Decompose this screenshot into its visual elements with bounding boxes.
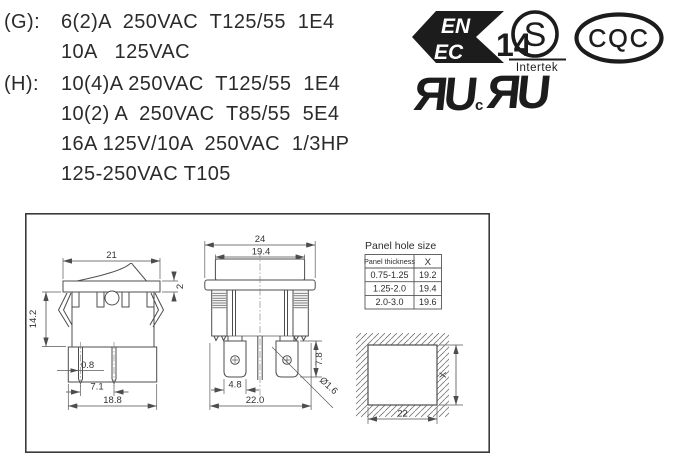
cutout-dim-height: X: [438, 371, 449, 378]
rating-g-line-2: 10A 125VAC: [61, 41, 190, 63]
cul-recognized-mark-icon: RU: [485, 68, 554, 115]
cutout-dim-width: 22: [397, 409, 408, 420]
cqc-text: CQC: [588, 25, 650, 53]
side-dim-term-thk: 0.8: [81, 360, 94, 371]
rating-h-line-3: 16A 125V/10A 250VAC 1/3HP: [61, 133, 349, 155]
table-row: 1.25-2.0 19.4: [373, 284, 437, 294]
rating-g-label: (G):: [4, 11, 40, 33]
side-dim-height: 14.2: [28, 310, 39, 329]
panel-cutout: 22 X: [356, 333, 463, 424]
snap-clip-left: [59, 293, 73, 327]
panel-hole-table: Panel hole size Panel thickness X 0.75-1…: [364, 240, 442, 309]
table-title: Panel hole size: [365, 240, 436, 252]
side-dim-bezel: 2: [175, 284, 186, 289]
front-dim-rocker-width: 19.4: [252, 247, 271, 258]
front-dim-bezel-width: 24: [255, 234, 266, 245]
datasheet-page: (G): 6(2)A 250VAC T125/55 1E4 10A 125VAC…: [0, 0, 700, 476]
row1-thickness: 0.75-1.25: [370, 270, 408, 280]
side-view: 21 2 0.8 7.1 18.8: [28, 250, 186, 410]
cul-reversed-r: R: [485, 68, 524, 115]
intertek-s: S: [524, 16, 547, 54]
ul-reversed-r: R: [412, 70, 451, 117]
table-row: 2.0-3.0 19.6: [375, 297, 436, 307]
snap-clip-right: [150, 293, 164, 327]
pivot-circle: [105, 291, 119, 305]
technical-drawing: 21 2 0.8 7.1 18.8: [25, 213, 490, 453]
rating-g-line-1: 6(2)A 250VAC T125/55 1E4: [61, 11, 335, 33]
side-dim-body-width: 18.8: [103, 395, 122, 406]
front-dim-overall: 22.0: [246, 395, 265, 406]
cqc-logo-icon: CQC: [573, 12, 665, 65]
table-row: 0.75-1.25 19.2: [370, 270, 436, 280]
enec-en-text: EN: [441, 15, 471, 38]
rocker-actuator: [77, 263, 147, 281]
intertek-s-mark-icon: S Intertek: [506, 9, 570, 73]
bezel-side: [63, 281, 160, 292]
row1-x: 19.2: [419, 270, 437, 280]
front-dim-hole: Ø1.6: [317, 375, 340, 397]
row3-x: 19.6: [419, 297, 437, 307]
rating-h-label: (H):: [4, 73, 39, 95]
row2-x: 19.4: [419, 284, 437, 294]
rating-h-line-4: 125-250VAC T105: [61, 163, 231, 185]
table-header-thickness: Panel thickness: [364, 257, 415, 266]
side-dim-term-pitch: 7.1: [90, 382, 103, 393]
front-dim-term-width: 4.8: [228, 380, 241, 391]
row3-thickness: 2.0-3.0: [375, 297, 403, 307]
front-dim-term-len: 7.8: [314, 352, 325, 365]
front-view: 24 19.4 4.8: [205, 234, 340, 410]
side-dim-width: 21: [106, 250, 117, 261]
table-header-x: X: [425, 257, 432, 268]
row2-thickness: 1.25-2.0: [373, 284, 406, 294]
ul-c-prefix: c: [475, 98, 483, 113]
enec-ec-text: EC: [434, 41, 464, 64]
cutout-square: [368, 345, 437, 405]
ul-recognized-mark-icon: RU: [412, 70, 481, 117]
rating-h-line-1: 10(4)A 250VAC T125/55 1E4: [61, 73, 340, 95]
rating-h-line-2: 10(2) A 250VAC T85/55 5E4: [61, 103, 339, 125]
